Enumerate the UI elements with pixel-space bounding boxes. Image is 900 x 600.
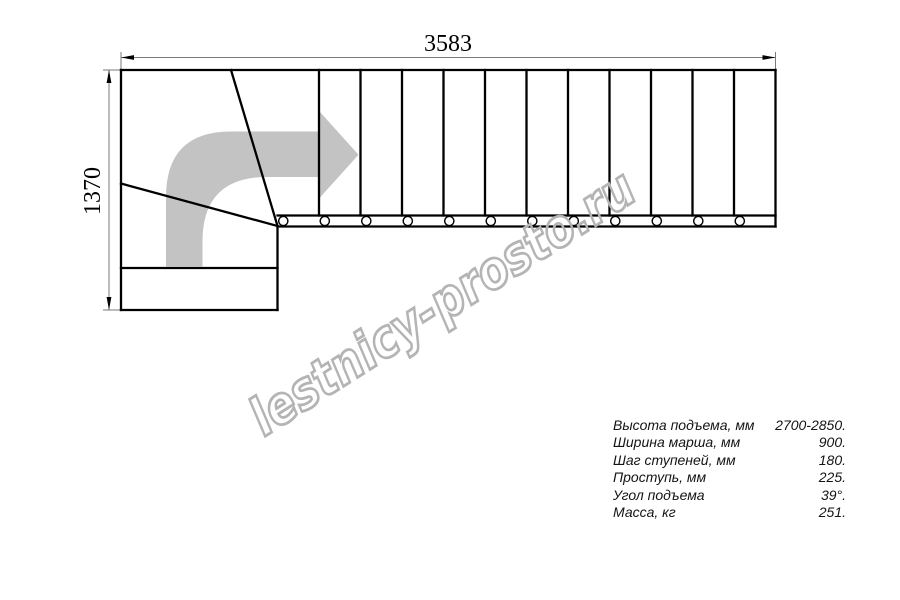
spec-label: Шаг ступеней, мм	[613, 452, 736, 469]
spec-row: Высота подъема, мм2700-2850.	[613, 417, 846, 434]
bolt-circle	[279, 216, 288, 225]
spec-label: Угол подъема	[613, 487, 705, 504]
spec-value: 2700-2850.	[775, 417, 846, 434]
spec-label: Ширина марша, мм	[613, 434, 740, 451]
spec-value: 39°.	[821, 487, 846, 504]
spec-row: Шаг ступеней, мм180.	[613, 452, 846, 469]
bolt-circle	[362, 216, 371, 225]
spec-table: Высота подъема, мм2700-2850.Ширина марша…	[613, 417, 846, 521]
dimension-arrowhead	[121, 55, 134, 60]
bolt-circle	[486, 216, 495, 225]
spec-value: 251.	[819, 504, 846, 521]
stair-drawing-page: 3583 1370 lestnicy-prosto.ru Высота подъ…	[0, 0, 900, 600]
spec-label: Высота подъема, мм	[613, 417, 755, 434]
bolt-circle	[652, 216, 661, 225]
spec-value: 900.	[819, 434, 846, 451]
spec-label: Проступь, мм	[613, 469, 706, 486]
bolt-circle	[735, 216, 744, 225]
spec-row: Ширина марша, мм900.	[613, 434, 846, 451]
dimension-height-label: 1370	[80, 167, 106, 215]
spec-value: 225.	[819, 469, 846, 486]
spec-row: Проступь, мм225.	[613, 469, 846, 486]
dimension-arrowhead	[107, 70, 112, 83]
direction-arrow	[166, 112, 359, 267]
spec-label: Масса, кг	[613, 504, 676, 521]
dimension-arrowhead	[107, 297, 112, 310]
bolt-circle	[320, 216, 329, 225]
bolt-circle	[694, 216, 703, 225]
bolt-circle	[445, 216, 454, 225]
spec-value: 180.	[819, 452, 846, 469]
spec-row: Масса, кг251.	[613, 504, 846, 521]
spec-row: Угол подъема39°.	[613, 487, 846, 504]
bolt-circle	[403, 216, 412, 225]
dimension-width-label: 3583	[424, 31, 472, 57]
dimension-arrowhead	[763, 55, 776, 60]
